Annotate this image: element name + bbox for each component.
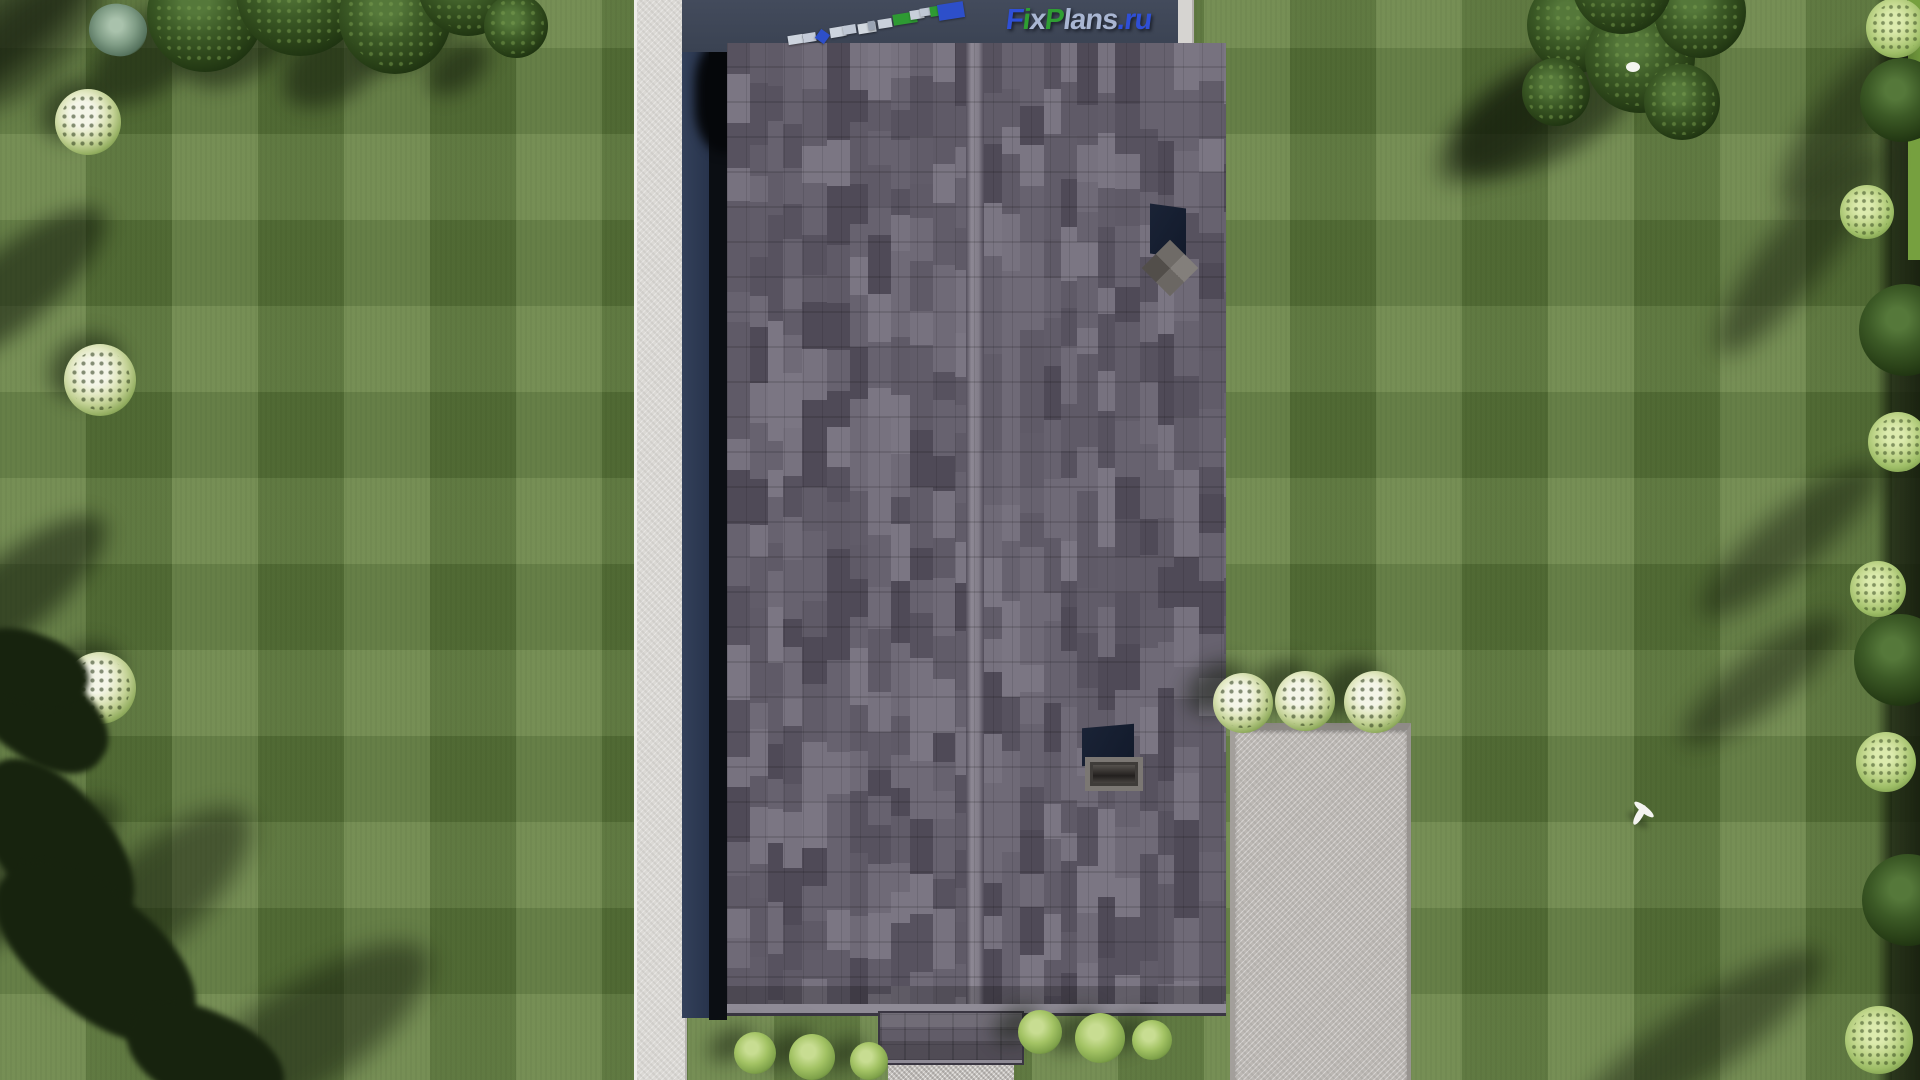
shingle-block xyxy=(1077,385,1098,447)
shingle-block xyxy=(868,235,891,294)
shingle-block xyxy=(1044,366,1061,420)
shingle-block xyxy=(783,239,802,279)
shingle-block xyxy=(850,648,868,705)
shingle-block xyxy=(1061,451,1077,478)
roof-right-panel xyxy=(984,43,1226,1013)
shingle-block xyxy=(1098,371,1115,411)
shingle-block xyxy=(955,106,966,147)
shingle-block xyxy=(1061,346,1077,404)
shingle-block xyxy=(955,775,966,813)
shingle-block xyxy=(910,548,933,580)
shingle-block xyxy=(850,347,868,399)
shingle-block xyxy=(1174,773,1199,820)
shingle-block xyxy=(1002,364,1020,400)
shingle-block xyxy=(1199,172,1224,233)
shingle-block xyxy=(1115,154,1140,189)
shingle-block xyxy=(1098,607,1115,657)
shingle-block xyxy=(1224,292,1226,334)
shingle-block xyxy=(933,791,955,819)
shingle-block xyxy=(955,727,966,775)
shingle-block xyxy=(868,629,891,692)
foliage-speck xyxy=(1660,0,1741,52)
shingle-block xyxy=(1077,276,1098,328)
shingle-block xyxy=(1224,261,1226,292)
shingle-block xyxy=(1020,486,1044,513)
shingle-block xyxy=(727,787,750,842)
shingle-block xyxy=(1224,43,1226,104)
shingle-block xyxy=(727,168,750,201)
shingle-block xyxy=(933,138,955,164)
shingle-block xyxy=(868,453,891,485)
shingle-block xyxy=(955,922,966,964)
shingle-block xyxy=(1140,342,1158,382)
shingle-block xyxy=(1098,93,1115,133)
shingle-block xyxy=(1061,179,1077,227)
shingle-block xyxy=(891,716,910,755)
shingle-block xyxy=(910,874,933,914)
shingle-block xyxy=(827,660,850,716)
shingle-block xyxy=(750,423,768,479)
shingle-block xyxy=(750,479,768,525)
shingle-block xyxy=(768,43,783,86)
shingle-block xyxy=(933,265,955,320)
foliage-speck xyxy=(1349,676,1401,728)
shingle-block xyxy=(1044,278,1061,318)
shingle-block xyxy=(827,716,850,752)
shingle-block xyxy=(827,502,850,549)
shingle-block xyxy=(1140,471,1158,519)
shingle-block xyxy=(984,256,1002,306)
shingle-block xyxy=(1224,212,1226,261)
shingle-block xyxy=(727,201,750,232)
shingle-block xyxy=(1158,811,1174,855)
shingle-block xyxy=(1002,316,1020,364)
shingle-block xyxy=(802,742,827,801)
shingle-block xyxy=(827,853,850,910)
shingle-block xyxy=(768,843,783,902)
shingle-block xyxy=(783,726,802,784)
shingle-block xyxy=(1115,189,1140,226)
shingle-block xyxy=(827,427,850,467)
shingle-block xyxy=(768,121,783,172)
shingle-block xyxy=(1077,182,1098,212)
shingle-block xyxy=(984,829,1002,883)
shingle-block xyxy=(1061,707,1077,768)
shingle-block xyxy=(1020,433,1044,486)
shingle-block xyxy=(1115,477,1140,519)
shingle-block xyxy=(1020,106,1044,145)
shingle-block xyxy=(727,232,750,292)
shingle-block xyxy=(750,145,768,176)
shingle-block xyxy=(750,776,768,807)
shingle-block xyxy=(727,909,750,938)
shingle-block xyxy=(891,581,910,643)
shingle-block xyxy=(1199,581,1224,634)
shingle-block xyxy=(984,505,1002,558)
shingle-block xyxy=(727,757,750,787)
shingle-block xyxy=(1174,747,1199,773)
shingle-block xyxy=(955,472,966,503)
roof-eave-shading xyxy=(727,986,1226,1004)
house-wall-shadow xyxy=(682,0,709,1018)
shingle-block xyxy=(891,755,910,788)
shingle-block xyxy=(868,864,891,913)
shingle-block xyxy=(1002,214,1020,271)
shingle-block xyxy=(1140,382,1158,444)
shingle-block xyxy=(1098,657,1115,710)
shingle-block xyxy=(1140,610,1158,648)
shingle-block xyxy=(802,183,827,235)
shingle-block xyxy=(955,542,966,583)
shingle-block xyxy=(1044,43,1061,89)
shingle-block xyxy=(910,698,933,761)
shingle-block xyxy=(868,587,891,629)
shingle-block xyxy=(933,538,955,578)
shingle-block xyxy=(1158,518,1174,567)
shingle-block xyxy=(955,178,966,228)
shingle-block xyxy=(984,392,1002,450)
shingle-block xyxy=(1098,411,1115,468)
shingle-block xyxy=(868,342,891,388)
shingle-block xyxy=(768,86,783,121)
shingle-block xyxy=(1002,852,1020,914)
shingle-block xyxy=(868,770,891,796)
shingle-block xyxy=(910,345,933,381)
shingle-block xyxy=(1098,835,1115,897)
shingle-block xyxy=(984,639,1002,672)
shingle-block xyxy=(850,853,868,916)
shingle-block xyxy=(1174,607,1199,667)
shingle-block xyxy=(1061,833,1077,861)
shingle-block xyxy=(1020,513,1044,547)
shingle-block xyxy=(891,251,910,303)
shingle-block xyxy=(1061,281,1077,308)
shingle-block xyxy=(827,910,850,950)
foliage-speck xyxy=(70,350,131,411)
shingle-block xyxy=(1002,914,1020,965)
shingle-block xyxy=(955,147,966,178)
foliage-speck xyxy=(1871,3,1920,53)
flowering-shrub xyxy=(1344,671,1406,733)
shingle-block xyxy=(783,168,802,204)
shingle-block xyxy=(910,311,933,345)
shingle-block xyxy=(1224,104,1226,164)
shingle-block xyxy=(1158,608,1174,642)
shingle-block xyxy=(827,245,850,303)
shingle-block xyxy=(1224,438,1226,471)
shingle-block xyxy=(1098,133,1115,188)
shingle-block xyxy=(1020,907,1044,955)
shingle-block xyxy=(891,215,910,251)
shingle-block xyxy=(910,914,933,972)
shingle-block xyxy=(1061,932,1077,973)
shingle-block xyxy=(783,309,802,335)
shingle-block xyxy=(868,417,891,453)
shingle-block xyxy=(1061,607,1077,651)
shingle-block xyxy=(955,888,966,922)
shingle-block xyxy=(1077,530,1098,558)
shingle-block xyxy=(910,381,933,430)
shingle-block xyxy=(783,204,802,239)
shingle-block xyxy=(1174,511,1199,557)
shingle-block xyxy=(1098,520,1115,547)
shingle-block xyxy=(783,619,802,647)
shingle-block xyxy=(984,43,1002,93)
round-bush xyxy=(1018,1010,1062,1054)
shingle-block xyxy=(1044,873,1061,914)
shingle-block xyxy=(891,110,910,140)
shingle-block xyxy=(1224,471,1226,497)
shingle-block xyxy=(750,296,768,327)
shingle-block xyxy=(850,705,868,751)
shingle-block xyxy=(750,327,768,383)
shingle-block xyxy=(827,140,850,186)
shingle-block xyxy=(891,337,910,395)
shingle-block xyxy=(955,433,966,472)
shingle-block xyxy=(891,863,910,892)
shingle-block xyxy=(727,322,750,376)
shingle-block xyxy=(1044,134,1061,193)
shingle-block xyxy=(1158,924,1174,984)
shingle-block xyxy=(1061,541,1077,581)
shingle-block xyxy=(768,497,783,543)
shingle-block xyxy=(1077,43,1098,105)
shingle-block xyxy=(910,761,933,819)
shingle-block xyxy=(910,76,933,136)
shingle-block xyxy=(933,733,955,762)
foliage-speck xyxy=(1844,189,1889,234)
shingle-block xyxy=(1020,145,1044,186)
foliage-speck xyxy=(1280,676,1330,726)
shingle-block xyxy=(850,224,868,257)
shingle-block xyxy=(933,679,955,733)
shingle-block xyxy=(783,784,802,812)
shingle-block xyxy=(1044,89,1061,134)
shingle-block xyxy=(802,349,827,400)
shingle-block xyxy=(955,405,966,433)
shingle-block xyxy=(802,89,827,146)
shingle-block xyxy=(910,43,933,76)
shingle-block xyxy=(1158,334,1174,375)
shingle-block xyxy=(750,658,768,703)
shingle-block xyxy=(1061,135,1077,179)
shingle-block xyxy=(850,916,868,958)
shingle-block xyxy=(1002,541,1020,601)
shingle-block xyxy=(868,388,891,417)
shingle-block xyxy=(984,883,1002,916)
shingle-block xyxy=(1115,43,1140,104)
shingle-block xyxy=(1077,105,1098,145)
shingle-block xyxy=(1158,567,1174,608)
shingle-block xyxy=(1020,373,1044,433)
shingle-block xyxy=(1002,809,1020,852)
light-tree-crown xyxy=(1866,0,1920,58)
shingle-block xyxy=(1044,538,1061,593)
foliage-speck xyxy=(1526,62,1586,122)
shingle-block xyxy=(1115,374,1140,421)
foliage-speck xyxy=(1861,737,1911,787)
shingle-block xyxy=(955,333,966,377)
shingle-block xyxy=(1174,43,1199,90)
light-tree-crown xyxy=(1845,1006,1913,1074)
shingle-block xyxy=(1002,450,1020,505)
shingle-block xyxy=(1140,302,1158,342)
light-tree-crown xyxy=(1868,412,1920,472)
shingle-block xyxy=(1199,351,1224,409)
shingle-block xyxy=(727,292,750,322)
shingle-block xyxy=(933,491,955,538)
shingle-block xyxy=(1077,354,1098,385)
shingle-block xyxy=(1020,547,1044,610)
shingle-block xyxy=(1020,43,1044,106)
foliage-speck xyxy=(1854,565,1901,612)
shingle-block xyxy=(802,146,827,183)
shingle-block xyxy=(727,376,750,439)
shingle-block xyxy=(933,372,955,400)
shingle-block xyxy=(1061,894,1077,932)
shingle-block xyxy=(727,876,750,909)
shingle-block xyxy=(1098,897,1115,958)
shingle-block xyxy=(868,206,891,235)
shingle-block xyxy=(768,779,783,809)
shingle-block xyxy=(1174,859,1199,918)
shingle-block xyxy=(1158,855,1174,884)
shingle-block xyxy=(783,428,802,476)
shingle-block xyxy=(768,663,783,693)
shingle-block xyxy=(1199,409,1224,467)
shingle-block xyxy=(850,545,868,579)
shingle-block xyxy=(1077,588,1098,633)
shingle-block xyxy=(1020,242,1044,273)
shingle-block xyxy=(827,391,850,427)
shingle-block xyxy=(1140,707,1158,754)
shingle-block xyxy=(1199,494,1224,533)
foliage-speck xyxy=(488,0,544,54)
shingle-block xyxy=(891,78,910,110)
shingle-block xyxy=(1077,242,1098,276)
round-bush xyxy=(789,1034,835,1080)
shingle-block xyxy=(891,140,910,189)
shingle-block xyxy=(1098,809,1115,835)
shingle-block xyxy=(783,560,802,619)
shingle-block xyxy=(1020,692,1044,724)
shingle-block xyxy=(1224,943,1226,975)
shingle-block xyxy=(984,672,1002,734)
shingle-block xyxy=(1077,212,1098,242)
shingle-block xyxy=(955,690,966,727)
shingle-block xyxy=(827,612,850,660)
shingle-block xyxy=(750,257,768,296)
shingle-block xyxy=(891,524,910,581)
shingle-block xyxy=(827,186,850,245)
shingle-block xyxy=(768,270,783,321)
shingle-block xyxy=(783,517,802,560)
shingle-block xyxy=(802,43,827,89)
shingle-block xyxy=(1044,193,1061,239)
shingle-block xyxy=(955,270,966,333)
shingle-block xyxy=(984,93,1002,144)
shingle-block xyxy=(1061,43,1077,82)
shingle-block xyxy=(933,456,955,491)
shingle-block xyxy=(1044,318,1061,366)
shingle-block xyxy=(933,762,955,791)
shingle-block xyxy=(868,825,891,864)
shingle-block xyxy=(827,102,850,140)
shingle-block xyxy=(984,607,1002,639)
shingle-block xyxy=(783,79,802,124)
shingle-block xyxy=(1199,299,1224,351)
shingle-block xyxy=(868,131,891,165)
shingle-block xyxy=(933,909,955,969)
shingle-block xyxy=(750,729,768,776)
shingle-block xyxy=(727,123,750,168)
shingle-block xyxy=(1140,519,1158,555)
shingle-block xyxy=(1224,164,1226,212)
shingle-block xyxy=(1061,581,1077,607)
shingle-block xyxy=(768,693,783,744)
shingle-block xyxy=(1002,400,1020,450)
shingle-block xyxy=(891,303,910,337)
shingle-block xyxy=(1020,330,1044,373)
shingle-block xyxy=(768,172,783,215)
shingle-block xyxy=(1077,633,1098,688)
fixplans-watermark-logo: FixPlans.ru xyxy=(1004,4,1153,37)
shingle-block xyxy=(868,913,891,959)
shingle-block xyxy=(1115,878,1140,917)
light-tree-crown xyxy=(1850,561,1906,617)
shingle-block xyxy=(1002,751,1020,782)
shingle-block xyxy=(891,816,910,863)
foliage-speck xyxy=(1850,1011,1907,1068)
light-tree-crown xyxy=(1856,732,1916,792)
shingle-block xyxy=(1020,186,1044,242)
shingle-block xyxy=(910,430,933,487)
shingle-block xyxy=(750,83,768,145)
shingle-block xyxy=(933,879,955,909)
shingle-block xyxy=(1199,233,1224,263)
shingle-block xyxy=(955,631,966,690)
round-bush xyxy=(1075,1013,1125,1063)
shingle-block xyxy=(768,571,783,607)
shingle-block xyxy=(933,203,955,265)
shingle-block xyxy=(802,302,827,349)
shingle-block xyxy=(1115,519,1140,557)
shingle-block xyxy=(827,752,850,794)
shingle-block xyxy=(727,43,750,74)
shingle-block xyxy=(768,607,783,663)
shingle-block xyxy=(1224,334,1226,393)
shingle-block xyxy=(768,902,783,954)
shingle-block xyxy=(868,165,891,206)
shingle-block xyxy=(783,476,802,517)
shingle-block xyxy=(984,144,1002,203)
shingle-block xyxy=(910,218,933,261)
shingle-block xyxy=(1061,227,1077,281)
shingle-block xyxy=(1077,913,1098,963)
shingle-block xyxy=(891,189,910,215)
shingle-block xyxy=(984,203,1002,256)
shingle-block xyxy=(850,399,868,446)
shingle-block xyxy=(984,450,1002,505)
shingle-block xyxy=(1061,651,1077,707)
shingle-block xyxy=(1098,43,1115,93)
shingle-block xyxy=(1098,468,1115,520)
shingle-block xyxy=(1158,425,1174,470)
shingle-block xyxy=(891,43,910,78)
shingle-block xyxy=(891,923,910,986)
shingle-block xyxy=(1002,782,1020,809)
shingle-block xyxy=(1174,470,1199,511)
